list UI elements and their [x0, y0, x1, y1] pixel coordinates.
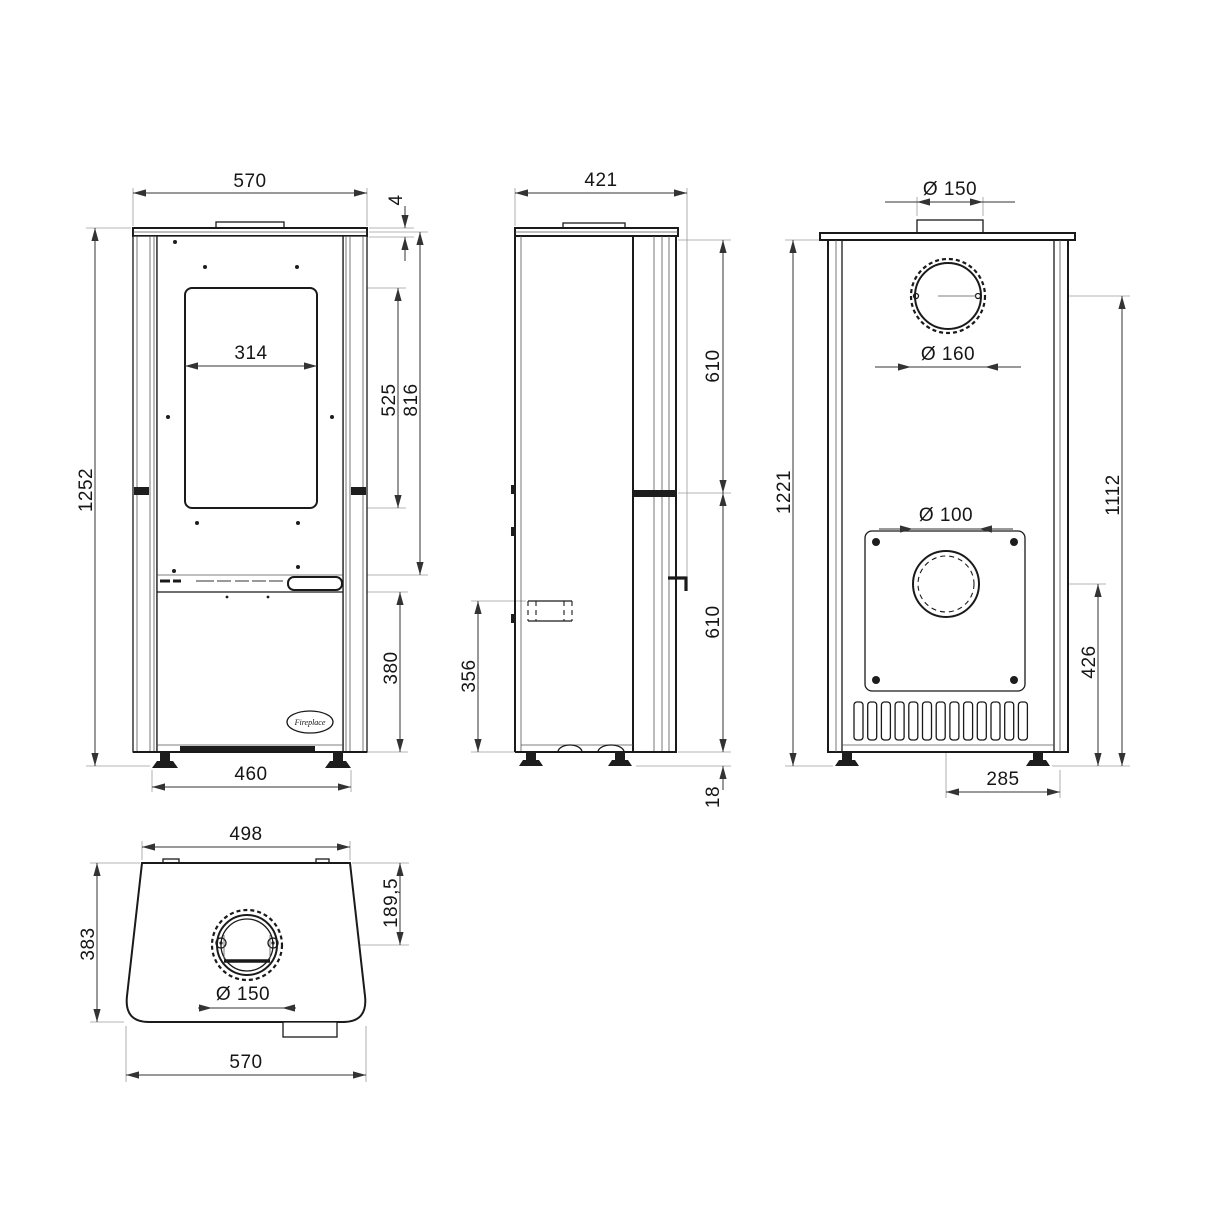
- dim-label: 816: [401, 383, 422, 416]
- side-view: 421 610 610 356 18: [459, 170, 731, 808]
- side-stove-body: [511, 223, 686, 766]
- dim-front-feet-spacing: 460: [152, 764, 351, 787]
- side-extension-lines: [471, 188, 731, 766]
- side-bottom-arc-2: [598, 745, 624, 752]
- dim-front-base-door-height: 380: [381, 592, 402, 752]
- dim-front-firebox-height: 816: [401, 232, 422, 575]
- dim-back-air-inlet-center-height: 426: [1079, 584, 1100, 766]
- dim-side-depth: 421: [515, 170, 687, 193]
- front-view: Fireplace 570 4 314 525: [76, 171, 428, 792]
- dim-label: 1112: [1103, 474, 1124, 515]
- side-air-inlet-box: [528, 601, 572, 621]
- back-flue-collar: [917, 220, 983, 233]
- dim-side-foot-height: 18: [703, 728, 724, 808]
- dim-top-bottom-width: 570: [126, 1052, 366, 1075]
- dim-label: Ø 100: [919, 505, 973, 526]
- dim-front-total-height: 1252: [76, 228, 97, 766]
- dim-label: 570: [233, 171, 266, 192]
- dim-back-air-inlet-offset: 285: [946, 769, 1060, 792]
- front-right-panel-joint: [351, 487, 366, 495]
- dim-side-upper-height: 610: [703, 240, 724, 493]
- front-stove-body: Fireplace: [133, 222, 367, 768]
- side-hinge-upper: [511, 485, 516, 494]
- top-view: 498 383 189,5 Ø 150 570: [78, 824, 409, 1082]
- side-hinge-lower: [511, 614, 516, 623]
- dim-label: 380: [381, 651, 402, 684]
- brand-logo-text: Fireplace: [294, 718, 326, 727]
- dim-back-flue-center-height: 1112: [1103, 296, 1124, 766]
- back-view: Ø 150 Ø 160 1221 1112 Ø 100: [774, 179, 1130, 798]
- dim-label: 426: [1079, 645, 1100, 678]
- dim-label: 570: [229, 1052, 262, 1073]
- front-right-foot: [325, 752, 351, 768]
- side-front-foot: [519, 752, 543, 766]
- front-air-control-handle: [288, 577, 342, 590]
- back-stove-body: [820, 220, 1075, 766]
- stove-dimension-drawing: Fireplace 570 4 314 525: [0, 0, 1214, 1214]
- top-rear-bracket: [283, 1022, 337, 1037]
- dim-back-total-height: 1221: [774, 240, 795, 766]
- dim-label: 383: [78, 927, 99, 960]
- side-bottom-arc-1: [558, 745, 582, 752]
- front-left-panel-joint: [134, 487, 149, 495]
- front-left-foot: [152, 752, 178, 768]
- dim-label: 421: [584, 170, 617, 191]
- dim-side-lower-height: 610: [703, 493, 724, 752]
- dim-label: 4: [386, 194, 407, 205]
- dim-label: 610: [703, 605, 724, 638]
- dim-label: 1252: [76, 468, 97, 512]
- dim-label: 498: [229, 824, 262, 845]
- technical-drawing-page: Fireplace 570 4 314 525: [0, 0, 1214, 1214]
- dim-label: Ø 150: [923, 179, 977, 200]
- back-right-foot: [1026, 752, 1050, 766]
- dim-side-inlet-height: 356: [459, 601, 480, 752]
- side-rear-foot: [608, 752, 632, 766]
- dim-label: 18: [703, 786, 724, 808]
- dim-front-top-width: 570: [133, 171, 367, 193]
- side-dimensions: 421 610 610 356 18: [459, 170, 724, 808]
- side-rear-panel-joint: [633, 490, 676, 497]
- dim-label: 460: [234, 764, 267, 785]
- dim-label: 314: [234, 343, 267, 364]
- dim-top-top-width: 498: [142, 824, 350, 847]
- back-air-inlet-plate: [865, 531, 1025, 691]
- dim-back-flue-collar-diameter: Ø 150: [885, 179, 1015, 202]
- back-top-plate: [820, 233, 1075, 240]
- dim-top-depth: 383: [78, 863, 99, 1022]
- dim-label: Ø 150: [216, 984, 270, 1005]
- front-plinth-strip: [180, 746, 315, 751]
- dim-front-glass-height: 525: [379, 288, 400, 508]
- dim-label: 356: [459, 659, 480, 692]
- dim-top-flue-center-offset: 189,5: [381, 863, 402, 945]
- dim-label: 610: [703, 349, 724, 382]
- dim-label: 189,5: [381, 878, 402, 928]
- dim-label: 285: [986, 769, 1019, 790]
- dim-label: 1221: [774, 470, 795, 514]
- dim-label: 525: [379, 383, 400, 416]
- side-hinge-mid: [511, 527, 516, 536]
- back-left-foot: [835, 752, 859, 766]
- top-stove-body: [127, 859, 366, 1037]
- dim-label: Ø 160: [921, 344, 975, 365]
